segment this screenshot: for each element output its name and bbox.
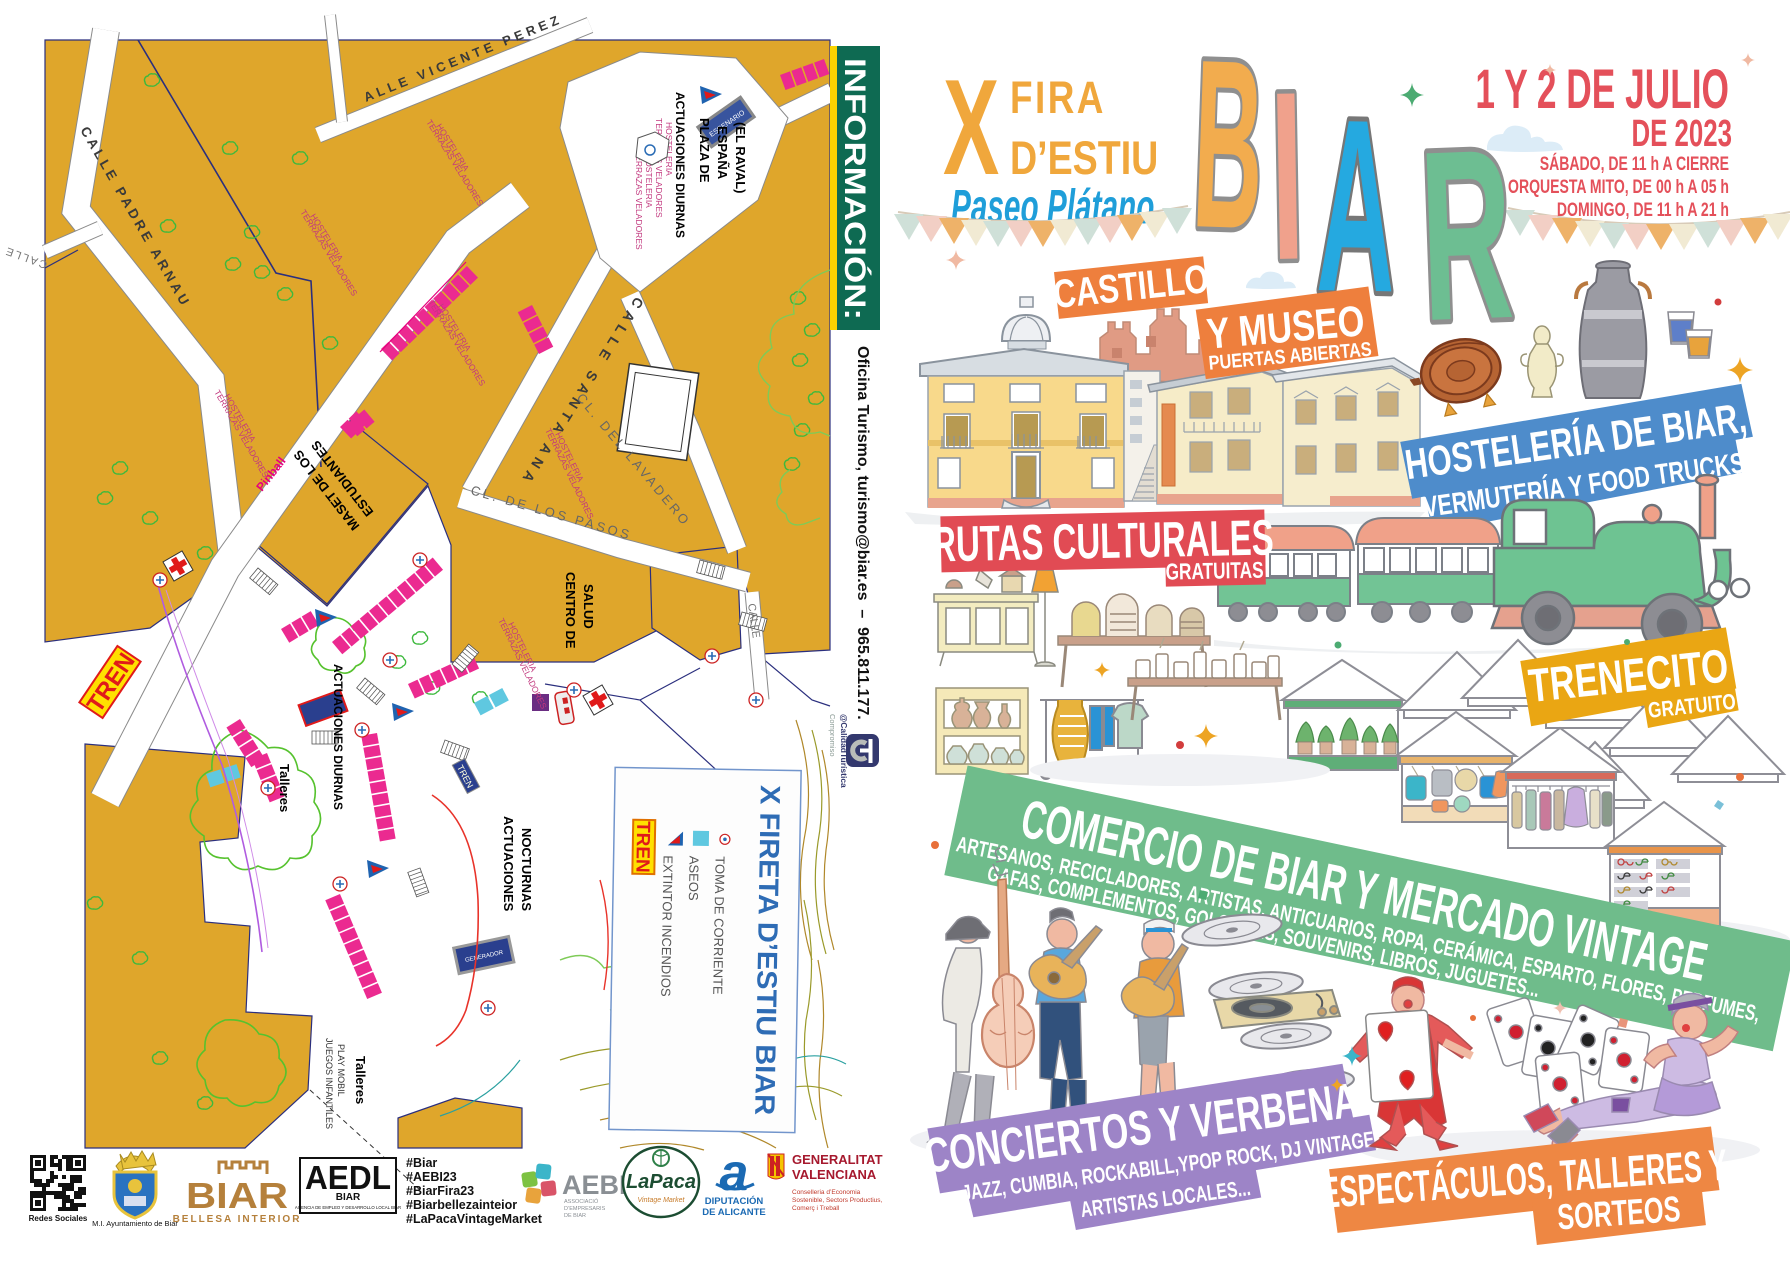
svg-text:ASSOCIACIÓ: ASSOCIACIÓ [564,1198,599,1205]
svg-text:Conselleria d’Economia: Conselleria d’Economia [792,1189,861,1196]
svg-text:DE ALICANTE: DE ALICANTE [702,1207,766,1218]
svg-text:VALENCIANA: VALENCIANA [792,1167,877,1182]
svg-text:AGENCIA DE EMPLEO Y DESARROLLO: AGENCIA DE EMPLEO Y DESARROLLO LOCAL BIA… [295,1205,401,1210]
svg-text:D’EMPRESARIS: D’EMPRESARIS [564,1206,606,1212]
svg-text:#Biarbellezainteior: #Biarbellezainteior [406,1198,517,1212]
svg-text:GRATUITAS: GRATUITAS [1165,558,1263,585]
svg-text:LaPaca: LaPaca [626,1171,696,1193]
svg-text:DE BIAR: DE BIAR [564,1213,586,1219]
svg-text:Comerç i Treball: Comerç i Treball [792,1205,840,1212]
svg-text:1 Y 2 DE JULIO: 1 Y 2 DE JULIO [1475,58,1729,120]
svg-text:#AEBI23: #AEBI23 [406,1170,457,1184]
svg-text:BIAR: BIAR [186,1175,288,1216]
svg-text:DOMINGO, DE 11 h A 21 h: DOMINGO, DE 11 h A 21 h [1557,199,1729,221]
svg-text:SÁBADO, DE 11 h A CIERRE: SÁBADO, DE 11 h A CIERRE [1540,153,1729,175]
svg-text:AEBI: AEBI [562,1170,627,1200]
svg-text:CASTILLO: CASTILLO [1051,256,1211,317]
svg-text:a: a [720,1144,749,1202]
svg-text:AEDL: AEDL [305,1159,391,1196]
svg-text:#BiarFira23: #BiarFira23 [406,1184,474,1198]
svg-text:GENERALITAT: GENERALITAT [792,1152,883,1167]
svg-text:ORQUESTA MITO, DE 00 h A 05 h: ORQUESTA MITO, DE 00 h A 05 h [1508,176,1729,198]
svg-text:M.I. Ayuntamiento de Biar: M.I. Ayuntamiento de Biar [92,1219,178,1228]
svg-text:B: B [1189,9,1268,279]
svg-text:SORTEOS: SORTEOS [1556,1189,1682,1238]
svg-text:D’ESTIU: D’ESTIU [1010,132,1158,185]
svg-text:FIRA: FIRA [1010,73,1106,123]
svg-text:BIAR: BIAR [336,1192,361,1203]
svg-text:Sostenible, Sectors Productius: Sostenible, Sectors Productius, [792,1197,883,1204]
svg-text:Vintage Market: Vintage Market [638,1197,686,1204]
svg-text:DE 2023: DE 2023 [1631,112,1732,154]
svg-text:I: I [1268,42,1306,311]
svg-text:BELLESA INTERIOR: BELLESA INTERIOR [173,1214,302,1225]
svg-text:#LaPacaVintageMarket: #LaPacaVintageMarket [406,1212,543,1226]
svg-text:Redes Sociales: Redes Sociales [29,1214,88,1223]
svg-text:DIPUTACIÓN: DIPUTACIÓN [705,1195,764,1207]
svg-text:#Biar: #Biar [406,1156,437,1170]
